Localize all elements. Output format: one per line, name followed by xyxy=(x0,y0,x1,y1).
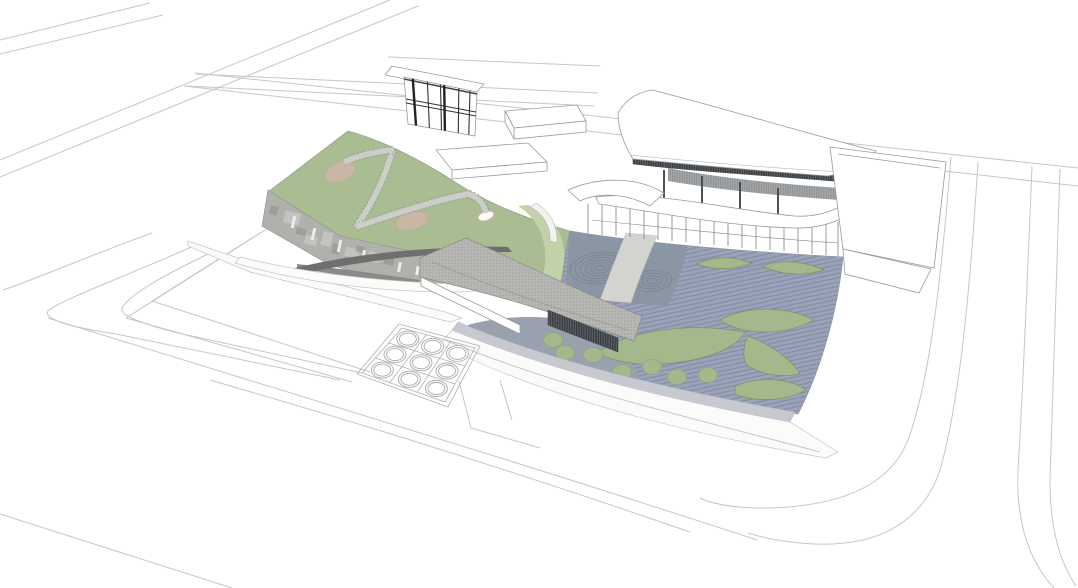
road-corner xyxy=(1018,166,1054,588)
site-aerial-rendering xyxy=(0,0,1078,588)
road-line xyxy=(186,86,594,106)
road-corner xyxy=(3,233,152,290)
road-line xyxy=(388,57,600,66)
road-line xyxy=(0,15,163,54)
plinth-step xyxy=(459,381,540,448)
plinth-edge xyxy=(126,318,352,382)
cube-building xyxy=(385,66,484,136)
road-corner xyxy=(1050,169,1076,586)
road-line xyxy=(0,3,150,40)
road-corner xyxy=(47,244,340,380)
plinth-step xyxy=(500,380,512,420)
rendering-canvas xyxy=(0,0,1078,588)
plinth-edge xyxy=(152,301,370,372)
road-line xyxy=(0,514,232,588)
